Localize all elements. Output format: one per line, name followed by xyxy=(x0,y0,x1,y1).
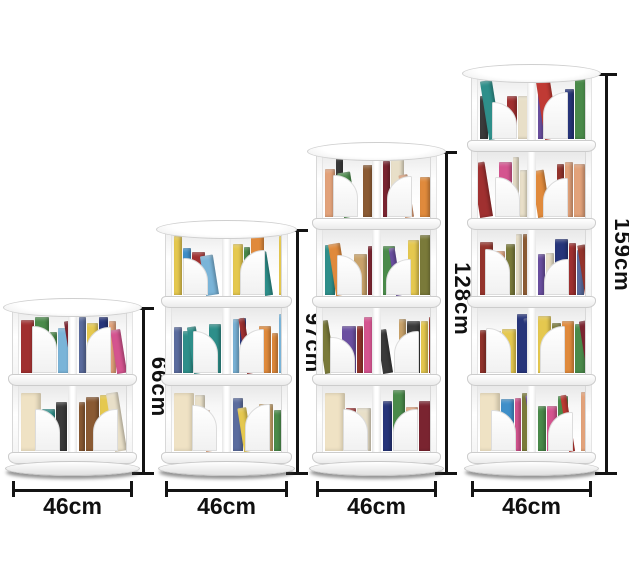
shelf-tier xyxy=(165,228,288,306)
shelf-side-wall xyxy=(165,306,172,384)
shelf-top-disc xyxy=(307,142,446,161)
shelf-base xyxy=(158,461,295,476)
shelf-compartment xyxy=(323,384,372,462)
width-dimension-right-cap xyxy=(589,481,592,497)
shelf-side-wall xyxy=(585,306,592,384)
shelf-base xyxy=(464,461,599,476)
height-dimension-bottom-cap xyxy=(132,472,154,475)
shelf-side-wall xyxy=(281,228,288,306)
shelf-side-wall xyxy=(471,150,478,228)
shelf-side-wall xyxy=(471,384,478,462)
shelf-compartment xyxy=(381,228,430,306)
book-spine xyxy=(174,236,182,295)
shelf-tier xyxy=(471,72,592,150)
shelf-tier xyxy=(316,384,437,462)
shelf-side-wall xyxy=(12,384,19,462)
shelf-side-wall xyxy=(316,228,323,306)
width-dimension-left-cap xyxy=(165,481,168,497)
shelf-board xyxy=(312,374,441,386)
height-dimension-line xyxy=(142,308,145,474)
center-divider xyxy=(527,150,536,228)
shelf-side-wall xyxy=(316,306,323,384)
shelf-tiers xyxy=(165,228,288,462)
shelf-base xyxy=(309,461,444,476)
height-dimension-line xyxy=(605,74,608,474)
shelf-side-wall xyxy=(471,72,478,150)
shelf-tier xyxy=(471,150,592,228)
book-spine xyxy=(357,326,363,373)
bookend xyxy=(543,178,568,217)
center-divider xyxy=(222,306,231,384)
shelf-side-wall xyxy=(585,150,592,228)
shelf-compartment xyxy=(231,306,281,384)
shelf-side-wall xyxy=(281,306,288,384)
shelf-compartment xyxy=(536,306,585,384)
shelf-board xyxy=(161,374,292,386)
center-divider xyxy=(68,306,77,384)
bookshelf-5-tier xyxy=(471,72,592,478)
shelf-tier xyxy=(316,150,437,228)
shelf-side-wall xyxy=(430,306,437,384)
shelf-compartment xyxy=(381,384,430,462)
book-spine xyxy=(569,243,576,295)
shelf-compartment xyxy=(323,306,372,384)
shelf-compartment xyxy=(77,384,126,462)
shelf-side-wall xyxy=(316,150,323,228)
center-divider xyxy=(372,306,381,384)
book-spine xyxy=(575,78,585,139)
height-dimension-line xyxy=(445,152,448,474)
book-spine xyxy=(419,401,430,451)
shelf-top-disc xyxy=(156,220,297,239)
shelf-side-wall xyxy=(430,384,437,462)
shelf-tiers xyxy=(471,72,592,462)
width-dimension-left-cap xyxy=(316,481,319,497)
book-spine xyxy=(574,164,585,217)
shelf-compartment xyxy=(231,384,281,462)
book-spine xyxy=(516,234,522,295)
width-dimension-right-cap xyxy=(285,481,288,497)
center-divider xyxy=(68,384,77,462)
shelf-board xyxy=(312,218,441,230)
shelf-side-wall xyxy=(471,228,478,306)
shelf-top-disc xyxy=(462,64,601,83)
shelf-tier xyxy=(471,384,592,462)
shelf-side-wall xyxy=(430,228,437,306)
center-divider xyxy=(372,228,381,306)
bookend xyxy=(333,175,358,217)
shelf-side-wall xyxy=(126,306,133,384)
bookend xyxy=(245,404,270,451)
shelf-compartment xyxy=(231,228,281,306)
shelf-base xyxy=(5,461,140,476)
shelf-side-wall xyxy=(316,384,323,462)
shelf-compartment xyxy=(478,384,527,462)
center-divider xyxy=(222,384,231,462)
center-divider xyxy=(222,228,231,306)
height-dimension-bottom-cap xyxy=(595,472,617,475)
shelf-compartment xyxy=(478,306,527,384)
width-dimension-line xyxy=(472,489,591,492)
shelf-compartment xyxy=(19,384,68,462)
shelf-tier xyxy=(471,306,592,384)
width-label: 46cm xyxy=(502,493,561,520)
book-spine xyxy=(538,406,546,451)
book-spine xyxy=(420,235,430,295)
width-dimension-right-cap xyxy=(434,481,437,497)
height-dimension-bottom-cap xyxy=(286,472,308,475)
product-dimension-image: 66cm46cm97cm46cm128cm46cm159cm46cm xyxy=(0,0,629,564)
shelf-compartment xyxy=(536,150,585,228)
bookshelf-4-tier xyxy=(316,150,437,478)
book-spine xyxy=(383,401,392,451)
shelf-compartment xyxy=(323,150,372,228)
width-dimension-line xyxy=(13,489,132,492)
shelf-side-wall xyxy=(585,72,592,150)
height-label: 159cm xyxy=(609,218,629,292)
center-divider xyxy=(527,384,536,462)
shelf-tier xyxy=(165,306,288,384)
book-spine xyxy=(478,162,493,218)
shelf-tiers xyxy=(12,306,133,462)
shelf-tier xyxy=(471,228,592,306)
width-dimension-right-cap xyxy=(130,481,133,497)
book-spine xyxy=(272,333,278,373)
book-spine xyxy=(518,96,527,139)
shelf-board xyxy=(467,296,596,308)
width-dimension-line xyxy=(317,489,436,492)
book-spine xyxy=(325,393,345,451)
shelf-compartment xyxy=(19,306,68,384)
width-dimension-left-cap xyxy=(471,481,474,497)
height-dimension-line xyxy=(296,230,299,474)
shelf-side-wall xyxy=(430,150,437,228)
shelf-tier xyxy=(316,306,437,384)
shelf-board xyxy=(467,140,596,152)
width-dimension-line xyxy=(166,489,287,492)
book-spine xyxy=(364,317,372,373)
center-divider xyxy=(527,306,536,384)
center-divider xyxy=(372,384,381,462)
book-spine xyxy=(174,393,194,451)
shelf-compartment xyxy=(381,150,430,228)
shelf-board xyxy=(8,374,137,386)
shelf-compartment xyxy=(172,228,222,306)
shelf-compartment xyxy=(478,72,527,150)
shelf-compartment xyxy=(323,228,372,306)
shelf-compartment xyxy=(536,228,585,306)
width-label: 46cm xyxy=(43,493,102,520)
center-divider xyxy=(527,72,536,150)
width-dimension-left-cap xyxy=(12,481,15,497)
width-label: 46cm xyxy=(197,493,256,520)
book-spine xyxy=(520,170,527,217)
shelf-compartment xyxy=(478,150,527,228)
bookshelf-3-tier xyxy=(165,228,288,478)
height-dimension-bottom-cap xyxy=(435,472,457,475)
book-spine xyxy=(174,327,182,373)
book-spine xyxy=(381,329,393,374)
shelf-compartment xyxy=(536,72,585,150)
shelf-compartment xyxy=(77,306,126,384)
shelf-side-wall xyxy=(165,228,172,306)
shelf-side-wall xyxy=(585,228,592,306)
bookshelf-2-tier xyxy=(12,306,133,478)
center-divider xyxy=(372,150,381,228)
shelf-compartment xyxy=(172,384,222,462)
book-spine xyxy=(79,402,85,451)
shelf-tier xyxy=(12,306,133,384)
shelf-board xyxy=(467,374,596,386)
shelf-compartment xyxy=(172,306,222,384)
book-spine xyxy=(274,410,281,451)
shelf-tier xyxy=(12,384,133,462)
book-spine xyxy=(363,165,372,217)
width-label: 46cm xyxy=(347,493,406,520)
bookend xyxy=(192,405,217,451)
shelf-tiers xyxy=(316,150,437,462)
shelf-side-wall xyxy=(165,384,172,462)
shelf-tier xyxy=(165,384,288,462)
shelf-side-wall xyxy=(12,306,19,384)
shelf-board xyxy=(312,296,441,308)
shelf-board xyxy=(161,296,292,308)
book-spine xyxy=(420,177,430,217)
shelf-side-wall xyxy=(471,306,478,384)
book-spine xyxy=(79,317,86,373)
shelf-compartment xyxy=(478,228,527,306)
book-spine xyxy=(421,321,428,373)
shelf-compartment xyxy=(536,384,585,462)
shelf-compartment xyxy=(381,306,430,384)
shelf-board xyxy=(467,218,596,230)
shelf-side-wall xyxy=(126,384,133,462)
shelf-tier xyxy=(316,228,437,306)
shelf-top-disc xyxy=(3,298,142,317)
bookend xyxy=(394,331,419,373)
shelf-side-wall xyxy=(281,384,288,462)
shelf-side-wall xyxy=(585,384,592,462)
center-divider xyxy=(527,228,536,306)
